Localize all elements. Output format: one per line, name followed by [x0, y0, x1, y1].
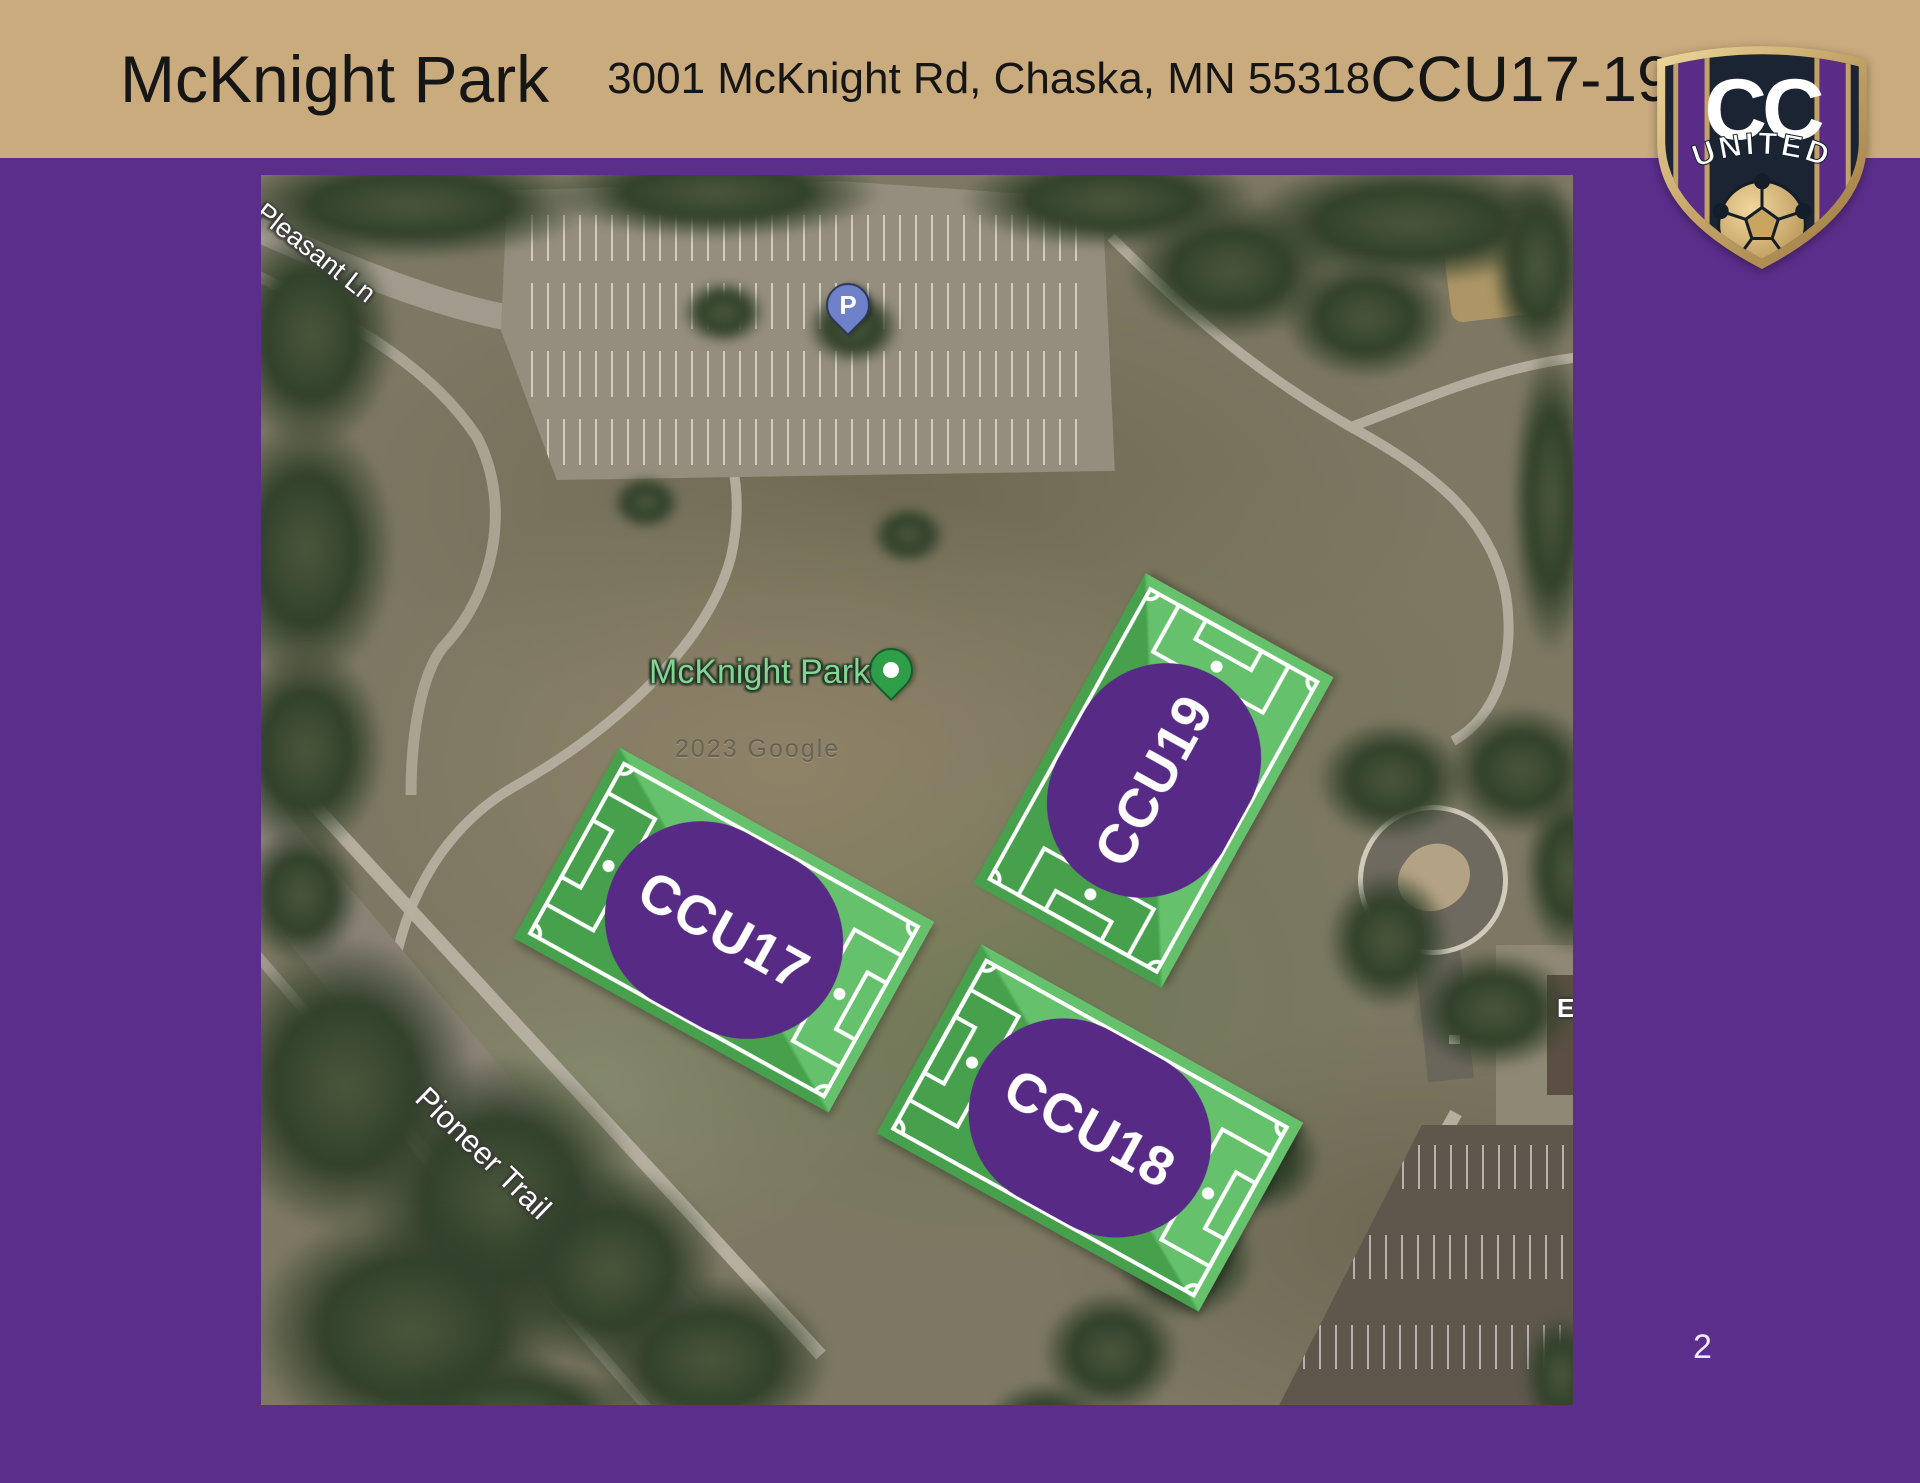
- clipped-edge-label: E: [1557, 993, 1573, 1024]
- park-name-label: McKnight Park: [649, 653, 870, 692]
- tree-cluster: [1281, 255, 1451, 380]
- header-banner: McKnight Park 3001 McKnight Rd, Chaska, …: [0, 0, 1920, 158]
- tree-cluster: [611, 475, 681, 530]
- park-pin-hole: [871, 650, 911, 690]
- imagery-watermark: 2023 Google: [675, 735, 840, 764]
- tree-cluster: [1316, 720, 1466, 840]
- tree-cluster: [1511, 345, 1573, 655]
- tree-cluster: [871, 505, 946, 565]
- tree-cluster: [1411, 950, 1573, 1070]
- tree-cluster: [261, 645, 386, 855]
- satellite-map: P McKnight Park Pleasant Ln Pioneer Trai…: [261, 175, 1573, 1405]
- tree-cluster: [681, 280, 766, 345]
- tree-cluster: [1491, 175, 1573, 360]
- cc-united-crest: CC UNITED: [1650, 26, 1874, 272]
- park-address: 3001 McKnight Rd, Chaska, MN 55318: [607, 54, 1370, 104]
- slide: McKnight Park 3001 McKnight Rd, Chaska, …: [0, 0, 1920, 1483]
- page-title: McKnight Park: [120, 41, 549, 117]
- parking-pin-letter: P: [828, 285, 868, 325]
- field-group-label: CCU17-19: [1370, 42, 1672, 116]
- page-number: 2: [1693, 1328, 1712, 1367]
